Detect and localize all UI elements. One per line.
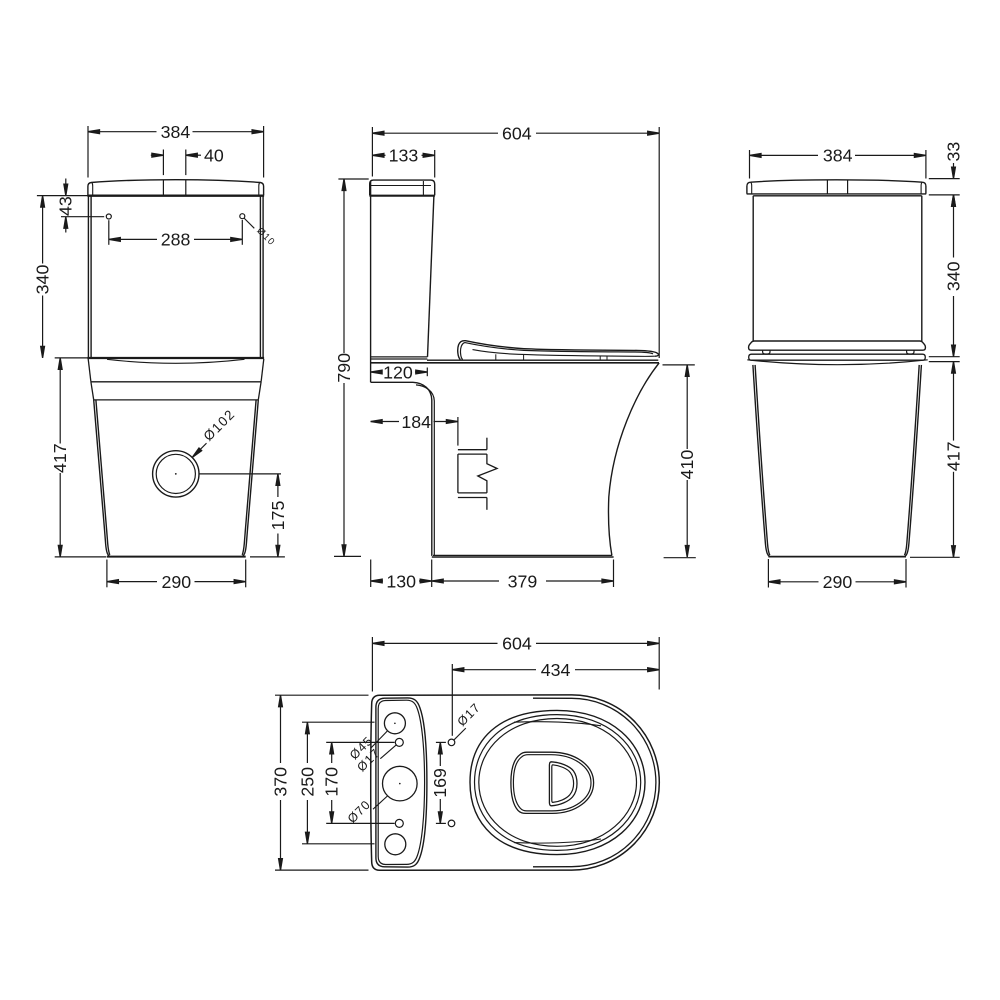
svg-text:120: 120: [383, 362, 413, 382]
svg-text:Ø10: Ø10: [254, 225, 277, 248]
svg-text:Ø17: Ø17: [455, 700, 484, 729]
svg-text:434: 434: [541, 660, 571, 680]
svg-text:370: 370: [270, 767, 290, 797]
svg-text:340: 340: [33, 265, 53, 295]
svg-text:410: 410: [677, 450, 697, 480]
svg-text:Ø102: Ø102: [200, 406, 238, 444]
svg-text:169: 169: [430, 768, 450, 798]
svg-text:40: 40: [204, 146, 224, 166]
svg-text:417: 417: [50, 443, 70, 473]
svg-text:384: 384: [161, 122, 191, 142]
svg-text:290: 290: [823, 572, 853, 592]
svg-text:184: 184: [401, 412, 431, 432]
svg-text:250: 250: [297, 767, 317, 797]
svg-text:384: 384: [823, 146, 853, 166]
svg-text:133: 133: [389, 146, 419, 166]
svg-text:170: 170: [322, 767, 342, 797]
svg-text:340: 340: [943, 261, 963, 291]
svg-text:290: 290: [161, 572, 191, 592]
svg-text:288: 288: [161, 230, 191, 250]
svg-text:Ø70: Ø70: [345, 797, 374, 826]
svg-text:130: 130: [386, 571, 416, 591]
svg-text:175: 175: [268, 501, 288, 531]
svg-text:604: 604: [502, 124, 532, 144]
svg-text:33: 33: [943, 142, 963, 162]
svg-text:790: 790: [334, 353, 354, 383]
svg-text:43: 43: [56, 196, 76, 216]
svg-text:604: 604: [502, 634, 532, 654]
svg-text:417: 417: [943, 441, 963, 471]
svg-text:379: 379: [508, 571, 538, 591]
